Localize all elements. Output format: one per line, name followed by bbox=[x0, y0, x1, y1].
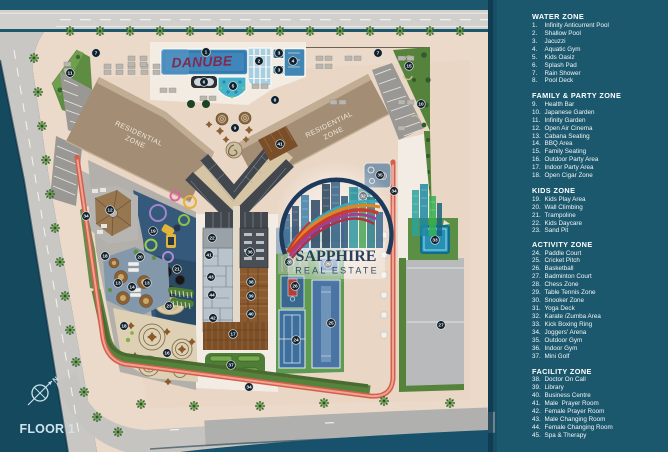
svg-text:36: 36 bbox=[247, 250, 253, 256]
svg-text:14: 14 bbox=[129, 285, 135, 291]
svg-text:3: 3 bbox=[278, 68, 281, 74]
svg-text:41: 41 bbox=[206, 253, 212, 259]
svg-text:13: 13 bbox=[115, 281, 121, 287]
svg-text:38: 38 bbox=[248, 280, 254, 286]
svg-text:16: 16 bbox=[164, 351, 170, 357]
svg-text:25: 25 bbox=[328, 321, 334, 327]
svg-text:23: 23 bbox=[166, 304, 172, 310]
svg-text:17: 17 bbox=[230, 332, 236, 338]
svg-text:20: 20 bbox=[137, 255, 143, 261]
svg-text:13: 13 bbox=[144, 281, 150, 287]
svg-text:34: 34 bbox=[391, 189, 397, 195]
svg-text:REAL ESTATE: REAL ESTATE bbox=[295, 266, 379, 276]
svg-text:6: 6 bbox=[203, 80, 206, 86]
svg-text:39: 39 bbox=[248, 294, 254, 300]
svg-text:2: 2 bbox=[258, 59, 261, 65]
svg-text:5: 5 bbox=[232, 84, 235, 90]
svg-text:37: 37 bbox=[228, 363, 234, 369]
svg-text:18: 18 bbox=[102, 254, 108, 260]
svg-text:3: 3 bbox=[278, 51, 281, 57]
svg-text:11: 11 bbox=[67, 71, 72, 77]
svg-text:34: 34 bbox=[246, 385, 252, 391]
svg-text:26: 26 bbox=[292, 284, 298, 290]
svg-text:41: 41 bbox=[277, 142, 283, 148]
svg-text:22: 22 bbox=[209, 236, 215, 242]
svg-text:8: 8 bbox=[274, 98, 277, 104]
svg-text:4: 4 bbox=[292, 59, 295, 65]
svg-text:18: 18 bbox=[121, 324, 127, 330]
svg-text:1: 1 bbox=[205, 50, 208, 56]
svg-text:10: 10 bbox=[418, 102, 424, 108]
svg-text:34: 34 bbox=[83, 214, 89, 220]
svg-text:24: 24 bbox=[293, 338, 299, 344]
svg-text:SAPPHIRE: SAPPHIRE bbox=[296, 248, 377, 265]
svg-text:12: 12 bbox=[107, 208, 113, 214]
svg-text:21: 21 bbox=[174, 267, 180, 273]
svg-text:9: 9 bbox=[234, 126, 237, 132]
svg-text:15: 15 bbox=[406, 64, 412, 70]
svg-text:7: 7 bbox=[95, 51, 98, 57]
svg-text:40: 40 bbox=[248, 312, 254, 318]
svg-text:33: 33 bbox=[432, 238, 438, 244]
svg-text:7: 7 bbox=[377, 51, 380, 57]
svg-text:43: 43 bbox=[208, 275, 214, 281]
svg-text:42: 42 bbox=[210, 316, 216, 322]
svg-text:44: 44 bbox=[209, 293, 215, 299]
svg-text:27: 27 bbox=[438, 323, 444, 329]
svg-text:19: 19 bbox=[150, 229, 156, 235]
svg-text:DANUBE: DANUBE bbox=[171, 53, 233, 70]
